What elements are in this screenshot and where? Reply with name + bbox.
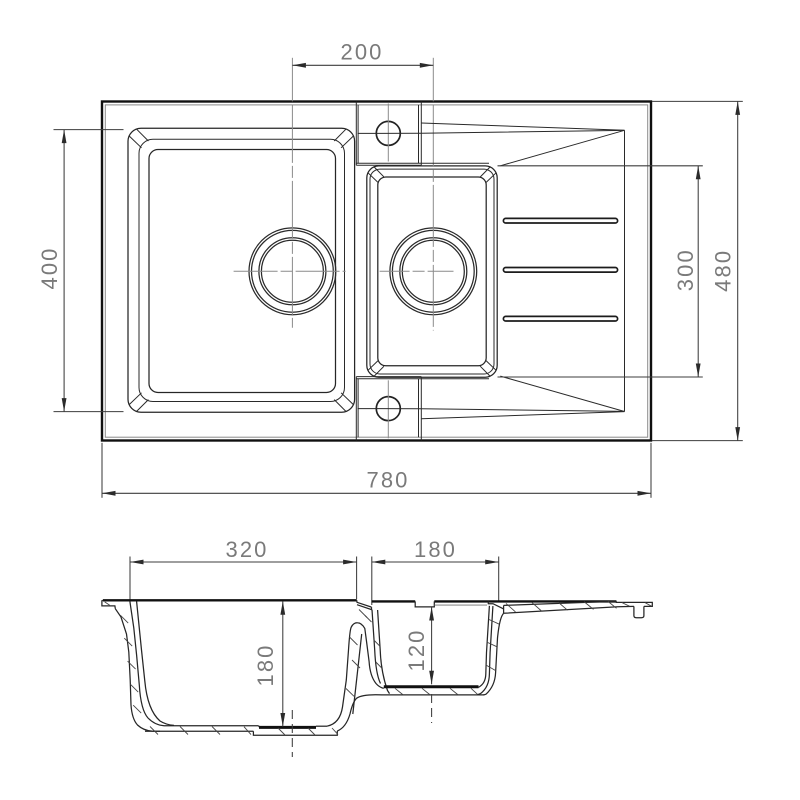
svg-text:480: 480 [711,249,736,292]
svg-text:300: 300 [673,248,698,291]
svg-text:780: 780 [366,468,409,493]
svg-text:180: 180 [414,537,457,562]
svg-text:180: 180 [253,643,278,686]
svg-text:400: 400 [37,246,62,289]
svg-text:120: 120 [404,628,429,671]
svg-text:200: 200 [340,40,383,65]
svg-text:320: 320 [225,537,268,562]
